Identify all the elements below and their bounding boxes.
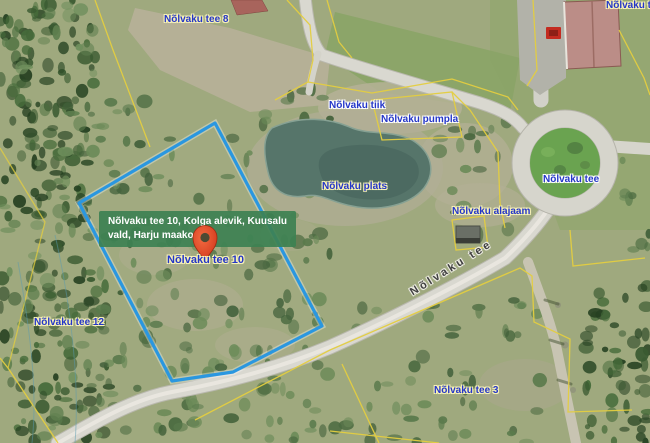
location-pin-icon[interactable] (188, 224, 222, 264)
parking-lot (517, 0, 566, 95)
aerial-map-image (0, 0, 650, 443)
roundabout (521, 119, 609, 207)
map-canvas[interactable]: Nõlvaku tee 8 Nõlvaku tee Nõlvaku tiik N… (0, 0, 650, 443)
